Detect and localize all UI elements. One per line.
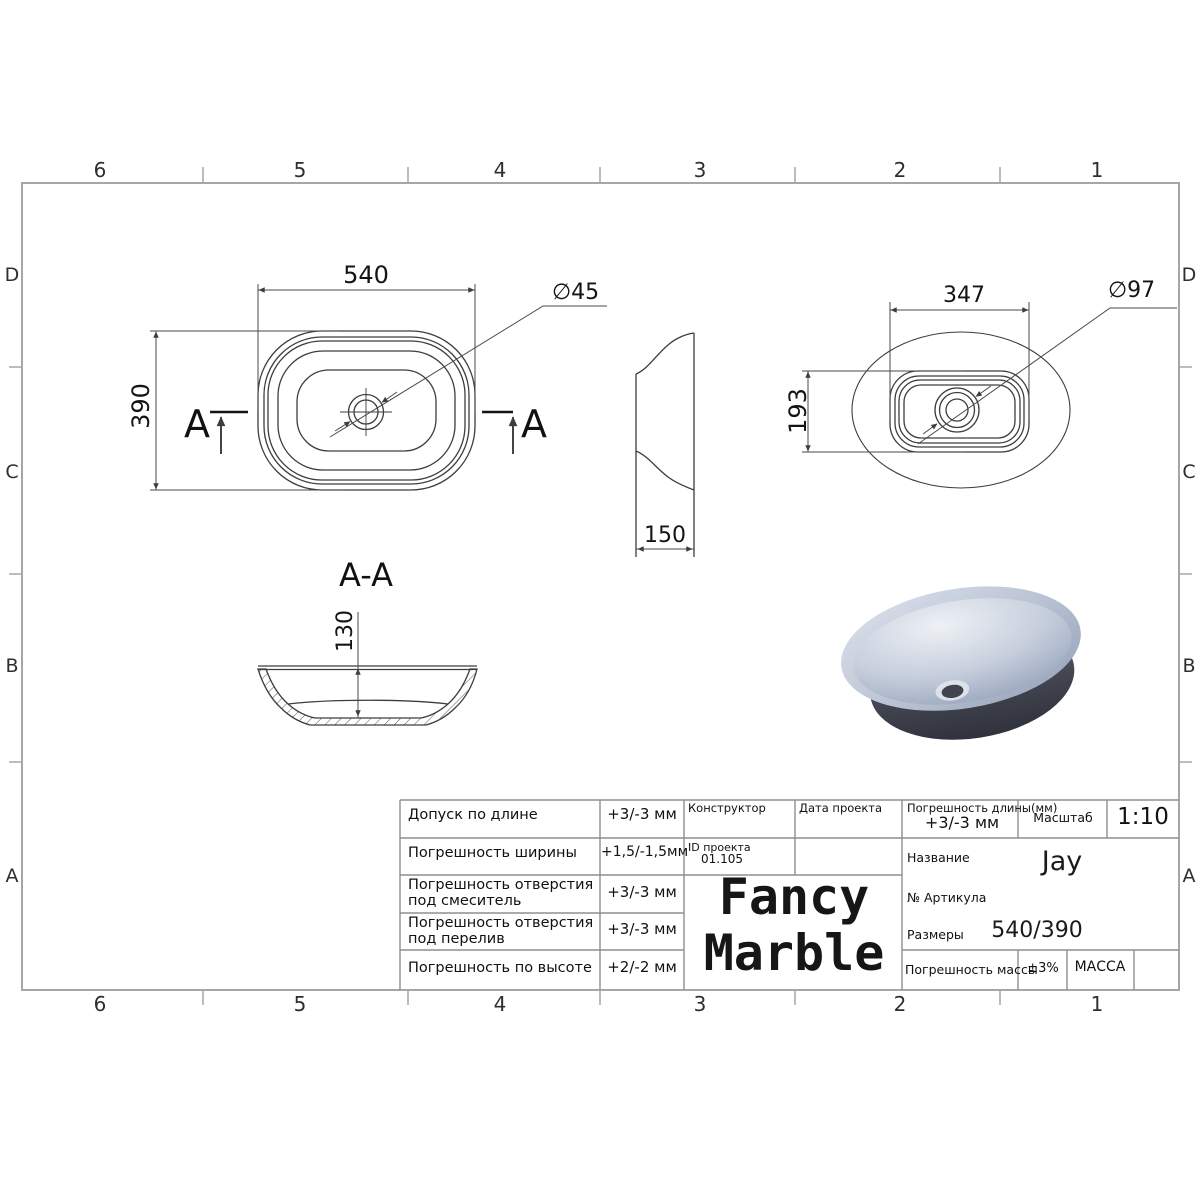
- zone-row-label: D: [1181, 264, 1197, 286]
- brand-logo-line1: Fancy: [686, 870, 902, 924]
- mass-tolerance-value: ±3%: [1019, 962, 1067, 975]
- zone-col-label: 1: [1085, 158, 1109, 182]
- section-letter-right: A: [514, 404, 554, 444]
- section-view: [258, 666, 477, 725]
- tolerance-value: +3/-3 мм: [601, 921, 683, 938]
- drawing-sheet: 6 5 4 3 2 1 6 5 4 3 2 1 D C B A D C B A …: [0, 0, 1197, 1200]
- zone-col-label: 2: [888, 992, 912, 1016]
- section-letter-left: A: [177, 404, 217, 444]
- zone-col-label: 3: [688, 992, 712, 1016]
- tolerance-value: +3/-3 мм: [601, 806, 683, 823]
- section-title: A-A: [316, 558, 416, 592]
- project-id-value: 01.105: [701, 853, 743, 866]
- zone-row-label: A: [1181, 865, 1197, 887]
- zone-row-label: C: [4, 461, 20, 483]
- plan-width-dimension: 540: [336, 262, 396, 288]
- plan-view: [258, 331, 475, 490]
- zone-row-label: B: [1181, 655, 1197, 677]
- mass-label: МАССА: [1068, 961, 1132, 974]
- tolerance-value: +1,5/-1,5мм: [601, 844, 683, 861]
- tolerance-label: Погрешность ширины: [408, 845, 577, 861]
- size-label: Размеры: [907, 928, 964, 941]
- plan-height-dimension: 390: [128, 376, 154, 436]
- designer-label: Конструктор: [688, 802, 766, 815]
- zone-row-label: C: [1181, 461, 1197, 483]
- scale-label: Масштаб: [1022, 811, 1104, 824]
- tolerance-label-line2: под смеситель: [408, 894, 521, 910]
- zone-col-label: 2: [888, 158, 912, 182]
- zone-row-label: D: [4, 264, 20, 286]
- tolerance-label: Погрешность по высоте: [408, 960, 592, 976]
- zone-row-label: A: [4, 865, 20, 887]
- zone-col-label: 5: [288, 992, 312, 1016]
- sink-3d-render: [832, 570, 1095, 757]
- tolerance-label-line2: под перелив: [408, 932, 505, 948]
- name-label: Название: [907, 851, 970, 864]
- name-value: Jay: [1012, 847, 1112, 877]
- tolerance-value: +2/-2 мм: [601, 959, 683, 976]
- tolerance-label: Погрешность отверстия: [408, 878, 593, 894]
- zone-col-label: 1: [1085, 992, 1109, 1016]
- mass-tolerance-label: Погрешность массы: [905, 963, 1017, 976]
- plan-drain-dimension: ∅45: [552, 280, 599, 306]
- bottom-height-dimension: 193: [785, 381, 811, 441]
- section-height-dimension: 130: [333, 601, 359, 661]
- tolerance-value: +3/-3 мм: [601, 884, 683, 901]
- tolerance-label: Допуск по длине: [408, 807, 538, 823]
- zone-col-label: 3: [688, 158, 712, 182]
- brand-logo-line2: Marble: [686, 926, 902, 980]
- zone-col-label: 4: [488, 992, 512, 1016]
- drawing-canvas: [0, 0, 1197, 1200]
- zone-col-label: 5: [288, 158, 312, 182]
- zone-row-label: B: [4, 655, 20, 677]
- bottom-view: [852, 332, 1070, 488]
- bottom-width-dimension: 347: [934, 283, 994, 309]
- scale-value: 1:10: [1109, 805, 1177, 830]
- side-width-dimension: 150: [635, 523, 695, 549]
- project-date-label: Дата проекта: [799, 802, 882, 815]
- zone-col-label: 6: [88, 158, 112, 182]
- size-value: 540/390: [977, 918, 1097, 943]
- zone-col-label: 4: [488, 158, 512, 182]
- bottom-drain-dimension: ∅97: [1108, 278, 1155, 304]
- tolerance-label: Погрешность отверстия: [408, 916, 593, 932]
- article-label: № Артикула: [907, 891, 986, 904]
- length-tolerance-value: +3/-3 мм: [912, 814, 1012, 831]
- zone-col-label: 6: [88, 992, 112, 1016]
